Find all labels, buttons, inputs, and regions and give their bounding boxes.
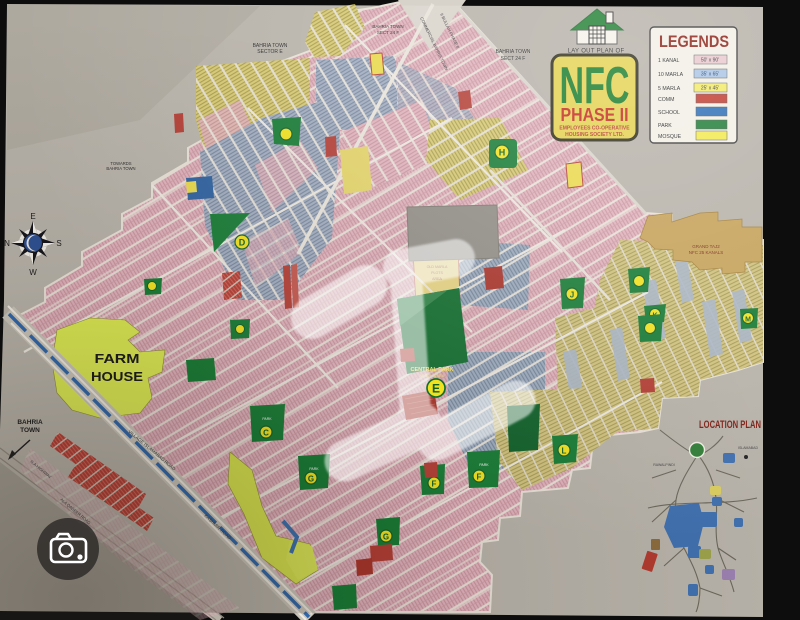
svg-text:E: E [432,382,440,396]
